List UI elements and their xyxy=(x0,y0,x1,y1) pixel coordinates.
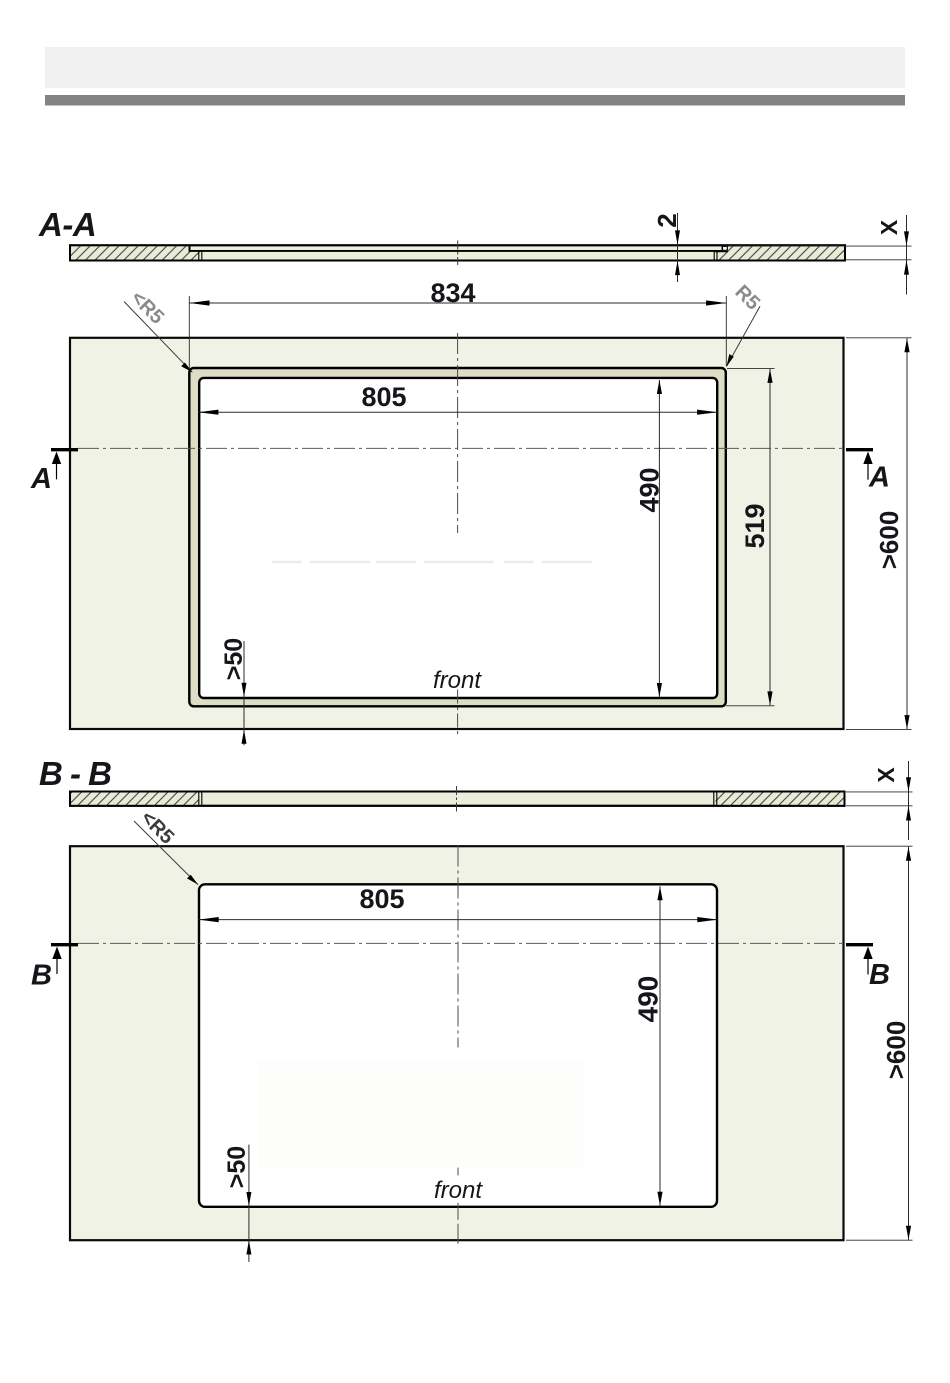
svg-text:490: 490 xyxy=(633,976,664,1023)
svg-text:>50: >50 xyxy=(223,1146,251,1188)
svg-text:front: front xyxy=(434,1177,483,1204)
svg-text:519: 519 xyxy=(740,503,770,548)
svg-text:805: 805 xyxy=(361,382,406,412)
svg-text:A: A xyxy=(30,463,52,495)
svg-text:>600: >600 xyxy=(874,511,904,570)
svg-text:X: X xyxy=(873,767,899,783)
svg-text:B: B xyxy=(869,959,890,991)
svg-text:490: 490 xyxy=(635,467,665,512)
svg-text:front: front xyxy=(433,667,482,694)
svg-text:>600: >600 xyxy=(881,1021,911,1080)
svg-text:B: B xyxy=(31,960,52,992)
svg-text:X: X xyxy=(876,219,902,235)
svg-text:B - B: B - B xyxy=(39,755,111,792)
svg-text:805: 805 xyxy=(359,884,404,914)
svg-text:834: 834 xyxy=(430,278,475,308)
svg-text:A: A xyxy=(868,462,890,494)
svg-text:>50: >50 xyxy=(220,638,248,680)
svg-text:A-A: A-A xyxy=(38,206,96,243)
svg-text:2: 2 xyxy=(652,213,682,227)
